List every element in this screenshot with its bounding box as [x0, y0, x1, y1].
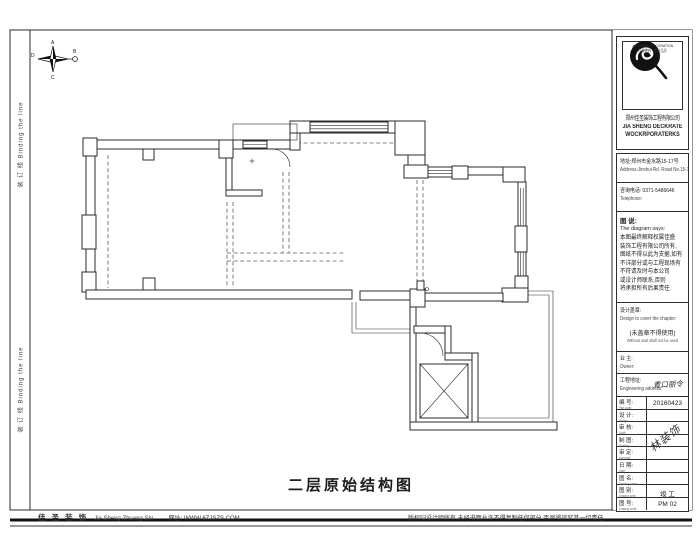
- floor-plan: [82, 121, 557, 430]
- stamp-title-en: Design to cover the chapter:: [620, 316, 679, 322]
- phone-box: 咨询电话: 0371-5486646 Telephone:: [616, 182, 689, 213]
- compass-icon: A B C D: [31, 40, 77, 81]
- door-arc: [419, 333, 443, 356]
- row-label-en: Drawing type:: [619, 494, 641, 498]
- note-title-cn: 图 说:: [620, 215, 685, 225]
- row-label-cn: 日 期:: [619, 461, 646, 469]
- light-marker-icon: [250, 159, 255, 164]
- footer-company-cn: 佳 圣 装 饰: [38, 513, 88, 522]
- binding-line-label: 装 订 线 Binding the line: [16, 90, 25, 200]
- address-cn: 地址:郑州市金水路15-17号: [620, 157, 679, 165]
- title-block-panel: JIA SHENG DECORATION 佳圣装饰 · 专业品质 郑州佳圣装饰工…: [613, 30, 692, 510]
- diagram-note-box: 图 说: The diagram says: 本图最终解释权属佳盛 装饰工程有限…: [616, 211, 689, 304]
- phone-en: Telephone:: [620, 196, 679, 202]
- note-line: 不符请及时与本公司: [620, 268, 680, 277]
- owner-label-cn: 业 主:: [620, 354, 679, 362]
- table-row: 图 名:Drawing name:: [617, 473, 688, 486]
- door-arc: [272, 149, 290, 167]
- project-address-box: 工程地址: Engineering address: 青口丽令: [616, 373, 689, 397]
- row-label-cn: 编 号:: [619, 398, 646, 406]
- note-line: 本图最终解释权属佳盛: [620, 234, 680, 243]
- table-row: 编 号:Part code: 20160423: [617, 397, 688, 410]
- row-label-cn: 图 别:: [619, 486, 646, 494]
- row-label-cn: 图 名:: [619, 474, 646, 482]
- sheet-frame: [10, 30, 692, 526]
- row-value: [647, 473, 688, 485]
- row-label-en: Part code:: [619, 406, 641, 410]
- note-line: 将承担所有后果责任.: [620, 285, 680, 294]
- note-line: 不详部分或与工程现场有: [620, 260, 680, 269]
- company-name-en: JIA SHENG DECKRATE WOCKRPORATERKS: [621, 124, 685, 139]
- row-label-cn: 设 计:: [619, 411, 646, 419]
- walls: [82, 121, 528, 307]
- stamp-box: 设计盖章: Design to cover the chapter: (未盖章不…: [616, 302, 689, 353]
- owner-box: 业 主: Owner:: [616, 351, 689, 374]
- row-label-en: Audit:: [619, 431, 641, 435]
- row-value: [647, 460, 688, 472]
- note-line: 装饰工程有限公司所有,: [620, 243, 680, 252]
- table-row: 图 别:Drawing type: 竣 工: [617, 485, 688, 498]
- dashed-beam-lines: [108, 143, 423, 288]
- table-row: 图 号:Drawing code: PM 02: [617, 498, 688, 511]
- address-box: 地址:郑州市金水路15-17号 Address:Jinshui Rd. Road…: [616, 153, 689, 184]
- drawing-sheet: A B C D: [0, 0, 700, 560]
- table-row: 日 期:Date:: [617, 460, 688, 473]
- row-label-en: Drafting:: [619, 444, 641, 448]
- title-table: 编 号:Part code: 20160423 设 计:Design: 审 核:…: [616, 396, 689, 512]
- row-label-cn: 审 核:: [619, 423, 646, 431]
- row-value: PM 02: [647, 498, 688, 511]
- row-label-cn: 审 定:: [619, 448, 646, 456]
- bay-outline: [233, 124, 297, 140]
- plan-title: 二层原始结构图: [288, 474, 414, 495]
- footer-company-en: Jia Sheng Zhuang Shi: [94, 516, 153, 522]
- row-value: 20160423: [647, 397, 688, 409]
- stamp-title-cn: 设计盖章:: [620, 306, 679, 314]
- project-address-value: 青口丽令: [653, 378, 684, 391]
- row-label-en: Date:: [619, 469, 641, 473]
- row-label-en: Design:: [619, 419, 641, 423]
- note-line: 或设计师联系,否则: [620, 277, 680, 286]
- company-name-cn: 郑州佳圣装饰工程有限公司: [623, 113, 681, 122]
- row-label-en: Drawing code:: [619, 507, 641, 511]
- compass-label-e: B: [73, 49, 77, 55]
- row-label-cn: 图 号:: [619, 499, 646, 507]
- binding-line-label: 装 订 线 Binding the line: [16, 335, 25, 445]
- compass-label-n: A: [51, 40, 55, 46]
- row-value: [647, 410, 688, 422]
- footer-website: 网址: WWW.6ZJSZS.COM: [169, 516, 240, 522]
- logo-frame: JIA SHENG DECORATION 佳圣装饰 · 专业品质: [622, 41, 683, 110]
- footer-copyright: 版权归设计师所有,未经书面允许不得复制任何部分,否则将追究其一切责任.: [408, 513, 608, 522]
- footer-company: 佳 圣 装 饰 Jia Sheng Zhuang Shi 网址: WWW.6ZJ…: [38, 512, 240, 523]
- phone-cn: 咨询电话: 0371-5486646: [620, 186, 679, 194]
- owner-label-en: Owner:: [620, 364, 679, 370]
- logo-subcaption: 佳圣装饰 · 专业品质: [629, 48, 676, 54]
- stamp-warning-en: Without seal shall not be used: [625, 338, 680, 343]
- company-logo-box: JIA SHENG DECORATION 佳圣装饰 · 专业品质 郑州佳圣装饰工…: [616, 36, 689, 150]
- note-title-en: The diagram says:: [620, 226, 685, 232]
- compass-label-s: C: [51, 75, 55, 81]
- company-name-en-line1: JIA SHENG DECKRATE: [621, 124, 685, 132]
- row-label-cn: 制 图:: [619, 436, 646, 444]
- note-line: 图纸不得以此为支据,如有: [620, 251, 680, 260]
- stair-elevator-core: [352, 291, 557, 430]
- table-row: 设 计:Design:: [617, 410, 688, 423]
- address-en: Address:Jinshui Rd. Road No.15-17: [620, 167, 679, 173]
- company-name-en-line2: WOCKRPORATERKS: [621, 132, 685, 140]
- row-value: 竣 工: [647, 485, 688, 497]
- compass-label-w: D: [31, 53, 35, 59]
- row-label-en: Drawing name:: [619, 482, 641, 486]
- stamp-warning-cn: (未盖章不得使用): [620, 328, 685, 337]
- row-label-en: Approval:: [619, 456, 641, 460]
